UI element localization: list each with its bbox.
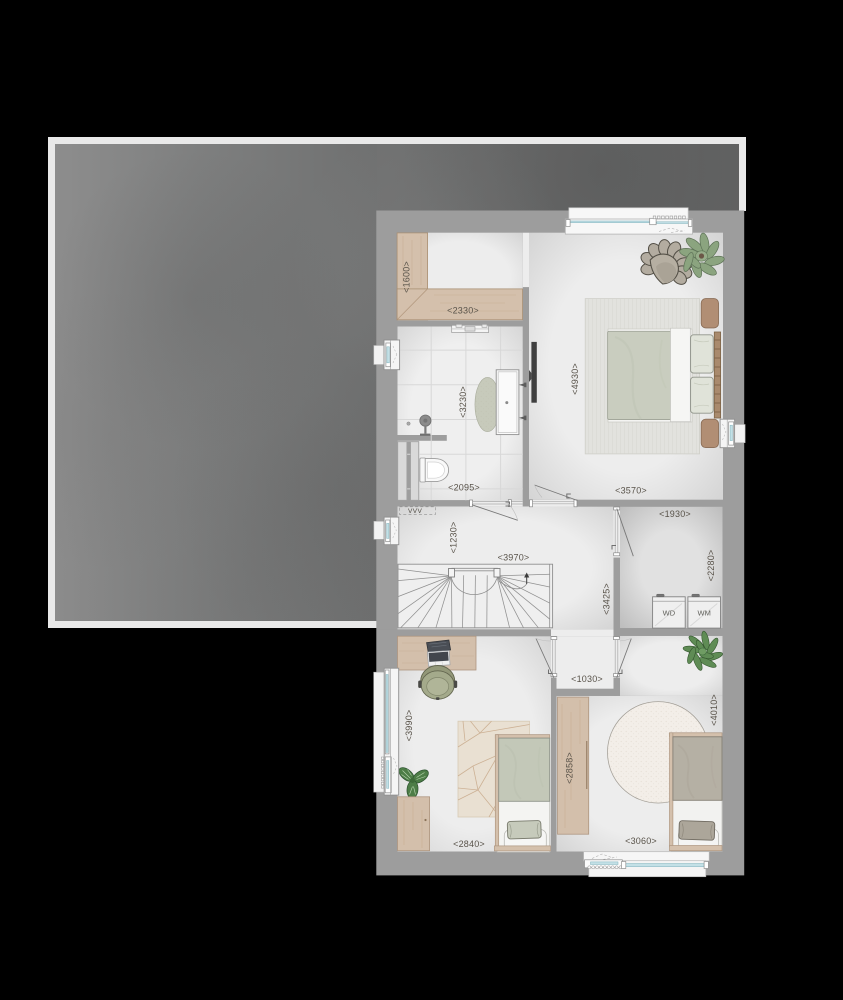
svg-text:<1030>: <1030> (571, 674, 603, 684)
svg-text:VVV: VVV (408, 508, 422, 515)
svg-text:<4930>: <4930> (570, 363, 580, 395)
svg-text:<2330>: <2330> (447, 306, 479, 316)
svg-text:<3990>: <3990> (404, 710, 414, 742)
svg-text:<1600>: <1600> (402, 261, 412, 293)
svg-text:<2095>: <2095> (448, 483, 480, 493)
svg-text:<2280>: <2280> (706, 550, 716, 582)
svg-text:<4010>: <4010> (709, 694, 719, 726)
svg-text:WD: WD (663, 609, 676, 618)
svg-text:WM: WM (698, 609, 711, 618)
svg-text:<2858>: <2858> (565, 752, 575, 784)
svg-text:<2840>: <2840> (453, 839, 485, 849)
svg-text:<3425>: <3425> (602, 583, 612, 615)
svg-text:<3230>: <3230> (458, 386, 468, 418)
svg-text:<3570>: <3570> (615, 486, 647, 496)
svg-text:<1930>: <1930> (659, 509, 691, 519)
svg-text:<3970>: <3970> (498, 553, 530, 563)
svg-text:<3060>: <3060> (625, 836, 657, 846)
svg-text:<1230>: <1230> (449, 522, 459, 554)
